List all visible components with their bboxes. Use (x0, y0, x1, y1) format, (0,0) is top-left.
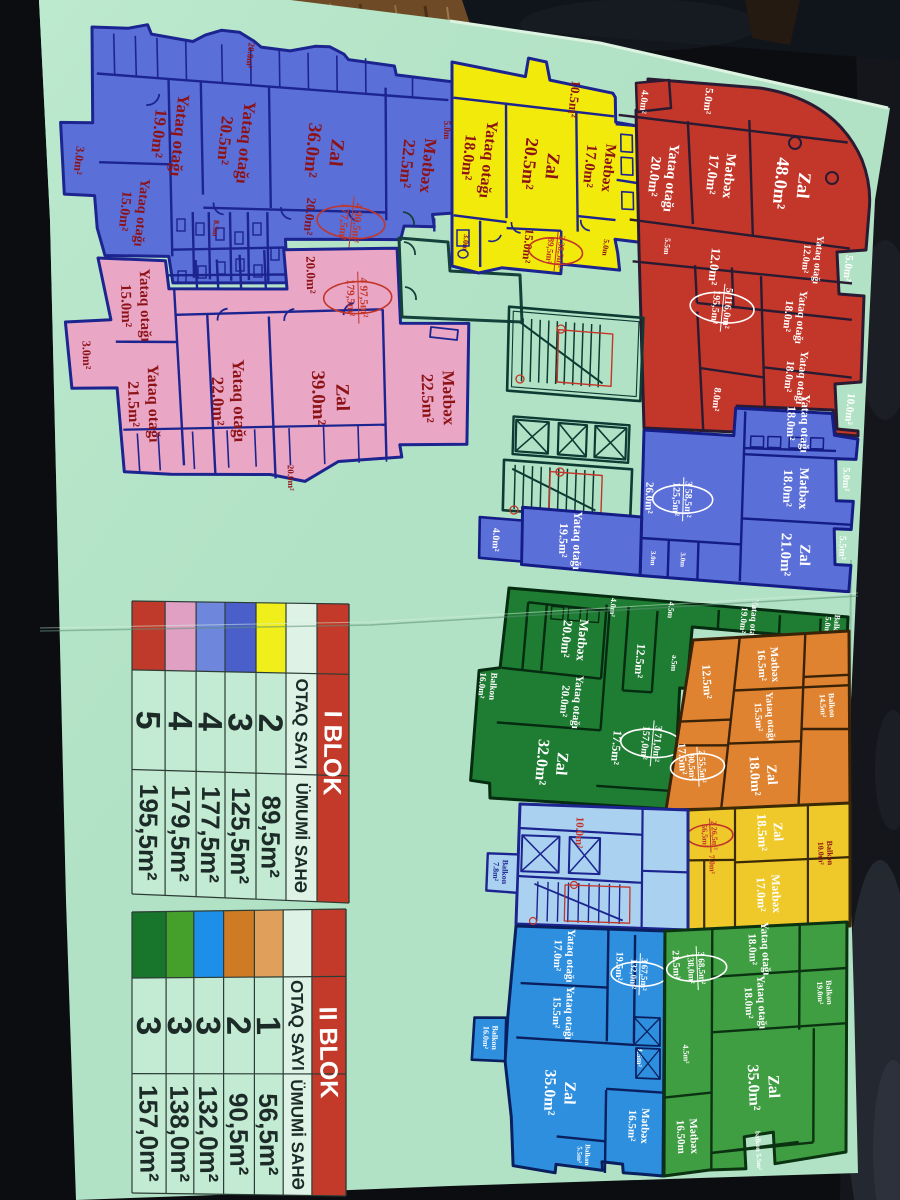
svg-text:18.0m²: 18.0m² (745, 755, 762, 796)
svg-text:18.0m²: 18.0m² (742, 987, 756, 1020)
svg-text:138,0m²: 138,0m² (685, 953, 696, 984)
svg-text:OTAQ SAYI: OTAQ SAYI (287, 980, 307, 1071)
svg-text:18.0m²: 18.0m² (745, 933, 759, 966)
svg-text:56,5m²: 56,5m² (253, 1093, 284, 1176)
svg-text:Mətbəx: Mətbəx (687, 1118, 701, 1154)
svg-text:Yataq otağı: Yataq otağı (797, 394, 813, 453)
svg-text:195,5m²: 195,5m² (133, 784, 164, 882)
svg-text:39.0m²: 39.0m² (307, 370, 329, 426)
svg-text:Yataq otağı: Yataq otağı (562, 986, 576, 1040)
svg-text:20.0m²: 20.0m² (286, 465, 297, 491)
svg-text:4.0m²: 4.0m² (637, 89, 650, 114)
svg-text:10.0m²: 10.0m² (816, 842, 826, 866)
svg-text:22.5m²: 22.5m² (418, 374, 438, 423)
svg-text:II BLOK: II BLOK (314, 1006, 343, 1098)
svg-text:Zal: Zal (796, 544, 813, 566)
svg-text:17.0m²: 17.0m² (551, 939, 564, 972)
svg-text:15.5m²: 15.5m² (752, 702, 765, 731)
svg-text:20.0m²: 20.0m² (558, 619, 576, 658)
svg-text:125,5m²: 125,5m² (225, 787, 256, 885)
svg-text:18.5m²: 18.5m² (754, 813, 771, 851)
svg-text:18.0m²: 18.0m² (784, 406, 799, 441)
svg-text:138,0m²: 138,0m² (164, 1085, 195, 1183)
svg-text:90,5m²: 90,5m² (686, 754, 697, 781)
svg-text:10.0m²: 10.0m² (573, 817, 586, 850)
svg-text:8.0m²: 8.0m² (709, 387, 722, 412)
svg-text:Zal: Zal (793, 172, 815, 200)
svg-text:ÜMUMİ SAHƏ: ÜMUMİ SAHƏ (287, 1079, 308, 1190)
svg-text:5.5m: 5.5m (662, 238, 673, 256)
svg-text:16.50m: 16.50m (674, 1120, 688, 1154)
svg-text:132,0m²: 132,0m² (193, 1085, 224, 1183)
svg-text:16.0m²: 16.0m² (481, 1026, 491, 1050)
svg-text:Zal: Zal (552, 752, 571, 777)
svg-text:5.5m²: 5.5m² (836, 536, 848, 560)
svg-text:4.5m²: 4.5m² (681, 1044, 691, 1064)
svg-text:Zal: Zal (331, 383, 353, 411)
svg-text:17.5m²: 17.5m² (608, 730, 625, 766)
svg-text:Yataq otağı: Yataq otağı (563, 929, 577, 983)
svg-text:7.8m²: 7.8m² (491, 862, 501, 882)
svg-text:4.0m²: 4.0m² (490, 528, 502, 552)
svg-text:21.0m²: 21.0m² (777, 533, 794, 577)
svg-text:Yataq otağı: Yataq otağı (136, 269, 154, 342)
svg-text:2: 2 (251, 713, 289, 732)
svg-text:19.0m²: 19.0m² (815, 981, 825, 1005)
svg-text:90,5m²: 90,5m² (223, 1093, 254, 1176)
svg-text:Zal: Zal (324, 138, 348, 167)
svg-text:12.5m²: 12.5m² (632, 643, 649, 679)
svg-text:5.0m²: 5.0m² (840, 467, 852, 491)
svg-text:Zal: Zal (771, 822, 787, 842)
svg-text:18.0m²: 18.0m² (780, 469, 796, 507)
svg-text:21.5m²: 21.5m² (670, 950, 682, 979)
svg-text:15.0m²: 15.0m² (117, 284, 134, 328)
svg-text:179,5m²: 179,5m² (344, 279, 357, 317)
svg-text:3.0m²: 3.0m² (71, 146, 88, 176)
svg-text:132,0m²: 132,0m² (628, 959, 639, 990)
svg-text:56,5m²: 56,5m² (700, 824, 710, 848)
svg-text:Mətbəx: Mətbəx (439, 370, 459, 426)
svg-text:Yataq otağı: Yataq otağı (229, 359, 250, 442)
svg-text:14.5m²: 14.5m² (818, 694, 828, 718)
svg-text:Mətbəx: Mətbəx (796, 467, 812, 510)
svg-text:5.5m²: 5.5m² (575, 1146, 584, 1163)
svg-text:35.0m²: 35.0m² (744, 1064, 763, 1111)
svg-text:7.0m²: 7.0m² (707, 855, 717, 875)
svg-text:5.0m: 5.0m (442, 121, 452, 140)
svg-text:177,5m²: 177,5m² (195, 786, 226, 884)
svg-text:16.5m²: 16.5m² (755, 649, 769, 682)
svg-text:Yataq otağı: Yataq otağı (570, 511, 586, 570)
svg-text:Zal: Zal (764, 1075, 782, 1099)
svg-text:Mətbəx: Mətbəx (638, 1108, 651, 1144)
svg-text:8.5m: 8.5m (210, 220, 221, 238)
svg-text:Zal: Zal (763, 764, 779, 785)
svg-text:3.0m²: 3.0m² (79, 341, 94, 370)
svg-text:19.5m²: 19.5m² (556, 523, 571, 558)
svg-text:157,0m²: 157,0m² (133, 1085, 164, 1183)
svg-text:Mətbəx: Mətbəx (768, 874, 784, 913)
svg-text:15.5m²: 15.5m² (550, 996, 563, 1029)
svg-text:Zal: Zal (541, 152, 564, 180)
svg-text:ə.5m: ə.5m (669, 655, 679, 672)
svg-text:16.5m²: 16.5m² (625, 1110, 638, 1143)
svg-text:5.0m: 5.0m (600, 239, 611, 257)
svg-text:Zal: Zal (560, 1081, 578, 1105)
svg-text:179,5m²: 179,5m² (165, 785, 196, 883)
svg-text:OTAQ SAYI: OTAQ SAYI (291, 678, 311, 769)
svg-text:12.5m²: 12.5m² (699, 664, 715, 700)
svg-text:Yataq otağı: Yataq otağı (144, 365, 163, 444)
svg-text:3.0m: 3.0m (678, 552, 686, 567)
svg-text:125,5m²: 125,5m² (670, 482, 682, 516)
svg-text:ÜMUMİ SAHƏ: ÜMUMİ SAHƏ (291, 782, 312, 893)
svg-text:I BLOK: I BLOK (318, 711, 347, 796)
svg-text:89,5m²: 89,5m² (255, 795, 286, 878)
svg-text:1: 1 (249, 1016, 287, 1035)
svg-text:22.0m²: 22.0m² (208, 377, 228, 426)
svg-text:17.0m²: 17.0m² (754, 877, 770, 913)
svg-text:35.0m²: 35.0m² (540, 1069, 559, 1116)
svg-text:3.0m: 3.0m (649, 551, 657, 566)
svg-text:20.0m²: 20.0m² (303, 256, 319, 294)
svg-text:21.5m²: 21.5m² (124, 381, 142, 428)
svg-text:Mətbəx: Mətbəx (767, 646, 781, 683)
